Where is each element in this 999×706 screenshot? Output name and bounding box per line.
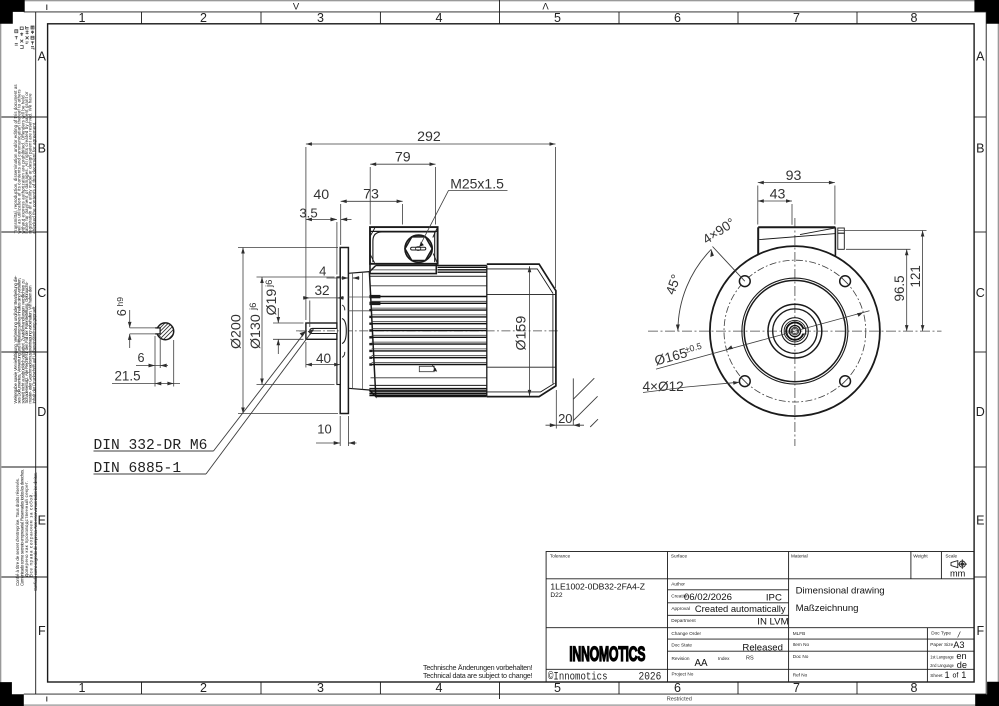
svg-text:Scale: Scale — [945, 554, 957, 559]
svg-text:RS: RS — [746, 655, 754, 661]
svg-text:©Innomotics: ©Innomotics — [548, 672, 608, 684]
svg-text:D: D — [976, 405, 985, 419]
svg-text:Item No: Item No — [793, 642, 810, 647]
svg-text:Weight: Weight — [913, 554, 928, 559]
svg-text:E: E — [38, 514, 46, 528]
svg-text:Ø159: Ø159 — [513, 316, 529, 351]
svg-text:AA: AA — [695, 658, 709, 669]
svg-text:Ø200: Ø200 — [229, 314, 245, 349]
svg-text:1: 1 — [79, 11, 86, 25]
svg-text:1: 1 — [945, 670, 950, 680]
svg-text:21.5: 21.5 — [114, 369, 140, 384]
svg-text:A3: A3 — [953, 640, 964, 650]
svg-text:Technical data are subject to: Technical data are subject to change! — [423, 671, 533, 680]
svg-text:32: 32 — [314, 283, 329, 298]
svg-text:B: B — [976, 142, 984, 156]
svg-text:MLFB: MLFB — [793, 631, 806, 636]
svg-text:3: 3 — [317, 681, 324, 695]
svg-text:Sheet: Sheet — [930, 673, 943, 678]
svg-text:7: 7 — [793, 681, 800, 695]
svg-text:5: 5 — [554, 11, 561, 25]
svg-text:Restricted: Restricted — [667, 697, 692, 703]
svg-text:E: E — [976, 514, 984, 528]
svg-text:Inhalt der Druckschrift auf Ue: Inhalt der Druckschrift auf Uebereinstim… — [31, 306, 36, 404]
svg-text:Created automatically: Created automatically — [695, 603, 786, 614]
svg-text:A: A — [976, 50, 985, 64]
svg-text:3.5: 3.5 — [299, 205, 317, 220]
svg-text:Material: Material — [791, 554, 808, 559]
svg-text:1: 1 — [961, 670, 966, 680]
svg-text:Author: Author — [671, 582, 685, 587]
svg-text:06/02/2026: 06/02/2026 — [684, 592, 732, 603]
svg-text:checked the contents of this d: checked the contents of this document fo… — [31, 122, 36, 234]
svg-text:Ø130: Ø130 — [248, 314, 264, 349]
svg-text:V: V — [293, 2, 300, 13]
svg-text:40: 40 — [313, 187, 329, 203]
svg-text:3: 3 — [317, 11, 324, 25]
svg-text:of: of — [953, 673, 959, 680]
svg-text:Dimensional drawing: Dimensional drawing — [796, 585, 885, 596]
svg-text:4: 4 — [319, 264, 326, 279]
svg-text:20: 20 — [558, 411, 572, 426]
svg-text:4: 4 — [436, 11, 443, 25]
svg-text:M25x1.5: M25x1.5 — [450, 176, 504, 192]
svg-text:D: D — [37, 405, 46, 419]
svg-text:40: 40 — [316, 351, 332, 366]
svg-text:Index: Index — [718, 656, 730, 661]
svg-text:73: 73 — [363, 187, 379, 203]
svg-text:1st Language: 1st Language — [930, 655, 954, 660]
svg-text:mm: mm — [950, 568, 966, 578]
svg-text:43: 43 — [770, 187, 786, 203]
svg-text:Doc State: Doc State — [671, 643, 692, 648]
svg-text:8: 8 — [911, 681, 918, 695]
svg-text:Ø19: Ø19 — [264, 289, 280, 316]
svg-text:de: de — [957, 660, 967, 670]
svg-text:4: 4 — [436, 681, 443, 695]
svg-text:1LE1002-0DB32-2FA4-Z: 1LE1002-0DB32-2FA4-Z — [550, 582, 645, 592]
svg-text:7: 7 — [793, 11, 800, 25]
svg-text:Approval: Approval — [671, 606, 690, 611]
svg-text:2: 2 — [200, 681, 207, 695]
svg-text:C: C — [976, 286, 985, 300]
svg-text:1: 1 — [79, 681, 86, 695]
svg-text:Λ: Λ — [542, 2, 549, 13]
svg-text:Department: Department — [671, 618, 696, 623]
svg-text:Confiado como segredo de empre: Confiado como segredo de empresa. Nos re… — [33, 472, 38, 591]
svg-text:Paper Size: Paper Size — [930, 642, 953, 647]
svg-text:6: 6 — [674, 11, 681, 25]
svg-text:B: B — [38, 142, 46, 156]
svg-text:D22: D22 — [550, 592, 562, 599]
svg-text:Change Order: Change Order — [671, 631, 701, 636]
svg-text:292: 292 — [417, 129, 441, 145]
svg-text:C: C — [37, 286, 46, 300]
svg-text:2nd Language: 2nd Language — [930, 663, 954, 668]
svg-text:6: 6 — [137, 351, 144, 365]
svg-text:Surface: Surface — [671, 554, 688, 559]
svg-text:6: 6 — [674, 681, 681, 695]
svg-text:j6: j6 — [248, 303, 259, 311]
svg-text:INNOMOTICS: INNOMOTICS — [569, 643, 645, 666]
svg-text:Project No: Project No — [672, 671, 694, 676]
svg-text:F: F — [976, 624, 984, 638]
svg-text:j6: j6 — [264, 280, 275, 288]
svg-text:Maßzeichnung: Maßzeichnung — [796, 603, 859, 614]
svg-text:2026: 2026 — [639, 672, 662, 684]
svg-text:IN LVM: IN LVM — [757, 617, 788, 628]
svg-text:Released: Released — [742, 642, 783, 653]
svg-text:Tolerance: Tolerance — [550, 554, 571, 559]
svg-text:Revision: Revision — [672, 656, 690, 661]
svg-text:121: 121 — [908, 265, 923, 287]
svg-text:Ref No: Ref No — [793, 672, 808, 677]
svg-text:96.5: 96.5 — [892, 275, 907, 301]
svg-text:h9: h9 — [115, 297, 125, 307]
svg-text:93: 93 — [786, 168, 802, 184]
svg-text:Doc Type: Doc Type — [931, 631, 951, 636]
svg-text:F: F — [38, 624, 46, 638]
svg-text:10: 10 — [317, 422, 331, 437]
svg-text:Doc No: Doc No — [793, 654, 809, 659]
svg-text:79: 79 — [395, 150, 411, 166]
svg-text:A: A — [38, 50, 47, 64]
svg-text:6: 6 — [115, 309, 129, 316]
svg-text:2: 2 — [200, 11, 207, 25]
svg-text:8: 8 — [911, 11, 918, 25]
